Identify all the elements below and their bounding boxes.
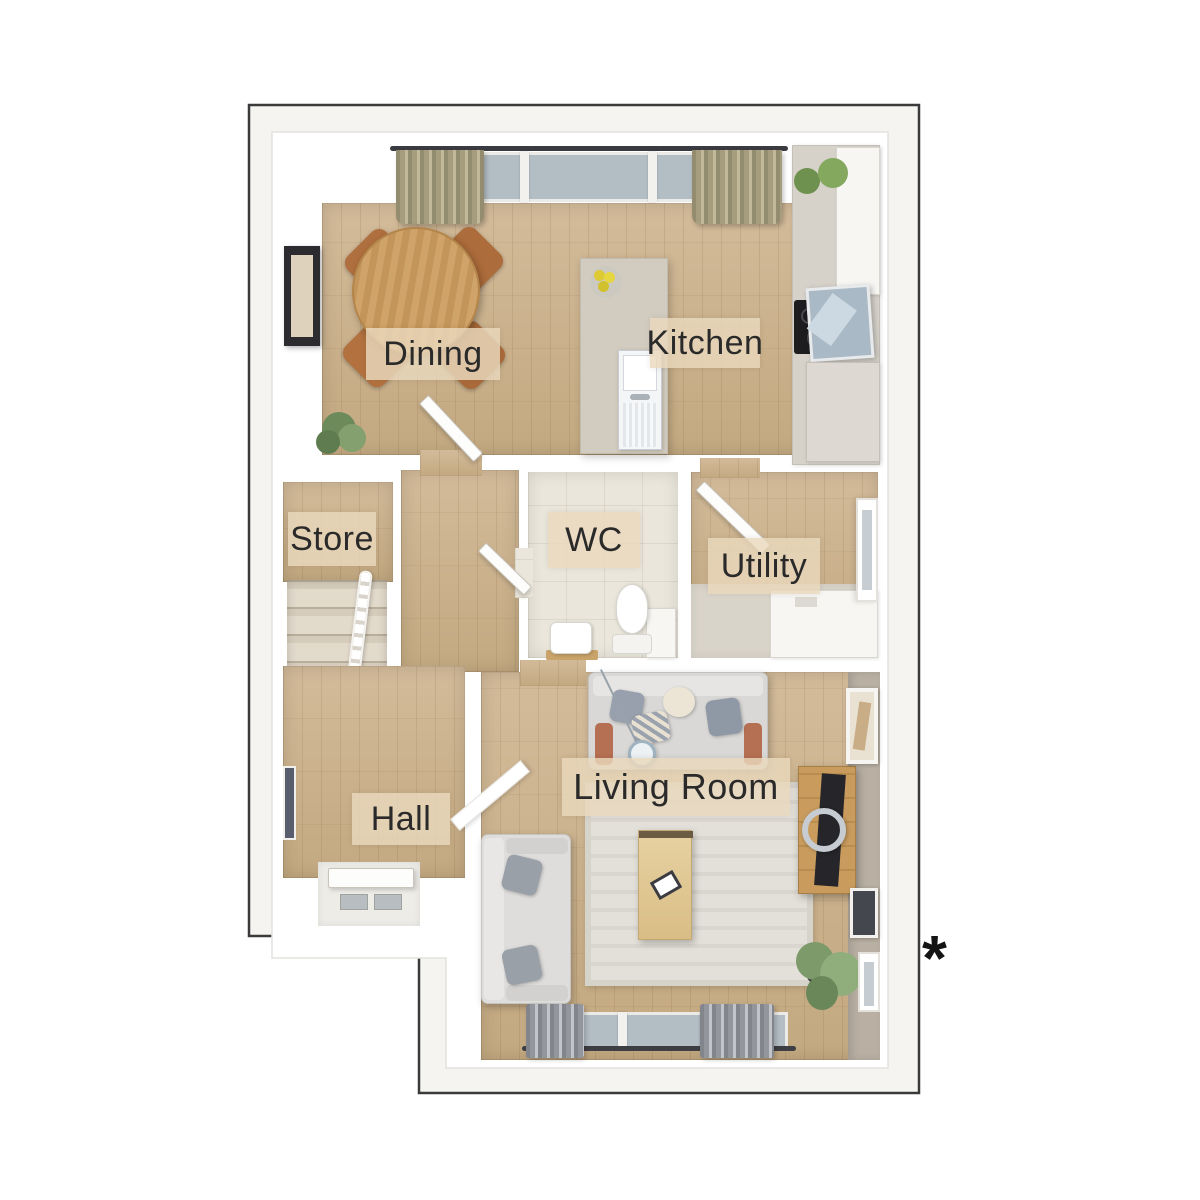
room-label-wc: WC: [548, 512, 640, 568]
window-glass: [862, 510, 872, 590]
curtain: [700, 1004, 774, 1058]
tray: [650, 870, 683, 900]
picture-frame: [846, 688, 878, 764]
front-door: [328, 868, 414, 888]
room-label-text: Store: [290, 520, 374, 559]
kitchen-lower-cabinet: [806, 362, 880, 462]
door-glazing: [340, 894, 368, 910]
utility-window: [856, 498, 878, 602]
cushion: [500, 853, 544, 897]
room-label-dining: Dining: [366, 328, 500, 380]
room-label-text: Utility: [721, 547, 808, 586]
window-mullion: [618, 1012, 627, 1050]
toilet: [616, 584, 648, 634]
room-label-utility: Utility: [708, 538, 820, 594]
doorway-opening: [700, 458, 760, 478]
room-label-text: WC: [565, 521, 623, 560]
plant: [338, 424, 366, 452]
room-label-store: Store: [288, 512, 376, 566]
table-edge: [639, 831, 693, 838]
plant: [806, 976, 838, 1010]
picture-art: [853, 701, 872, 750]
room-label-text: Dining: [383, 335, 482, 374]
picture-frame: [850, 888, 878, 938]
door-glazing: [374, 894, 402, 910]
window-glass: [864, 962, 874, 1006]
appliance-detail: [807, 293, 857, 346]
footnote-asterisk: *: [922, 926, 947, 990]
cushion: [501, 944, 544, 987]
room-label-kitchen: Kitchen: [650, 318, 760, 368]
room-label-text: Hall: [371, 800, 432, 839]
sofa-back: [484, 838, 504, 1000]
curtain: [396, 150, 484, 224]
hall-floor: [283, 666, 465, 878]
window-mullion: [648, 152, 657, 202]
toilet-cistern: [612, 634, 652, 654]
kitchen-appliance: [805, 284, 874, 362]
picture-art: [291, 255, 313, 337]
cushion: [705, 697, 744, 737]
round-mirror: [802, 808, 846, 852]
cushion: [663, 687, 695, 717]
plant: [794, 168, 820, 194]
hall-window: [283, 766, 296, 840]
plant: [316, 430, 340, 454]
sofa-arm: [506, 838, 568, 854]
faucet: [630, 394, 650, 400]
lemon: [598, 281, 609, 292]
room-label-text: Kitchen: [647, 324, 764, 363]
coffee-table: [638, 830, 692, 940]
room-label-hall: Hall: [352, 793, 450, 845]
curtain: [692, 150, 782, 224]
window-mullion: [520, 152, 529, 202]
doorway-opening: [520, 660, 586, 686]
picture-frame: [284, 246, 320, 346]
sofa-arm: [506, 985, 568, 1001]
sofa: [588, 672, 768, 770]
room-label-text: Living Room: [573, 766, 779, 808]
sofa: [481, 834, 571, 1004]
room-label-living-room: Living Room: [562, 758, 790, 816]
curtain: [526, 1004, 584, 1058]
plant: [818, 158, 848, 188]
wash-basin: [550, 622, 592, 654]
utility-counter-detail: [795, 597, 817, 607]
floor-plan-canvas: Dining Kitchen Store WC Utility Hall Liv…: [0, 0, 1200, 1200]
living-side-window: [858, 952, 880, 1012]
drainboard: [623, 403, 657, 447]
